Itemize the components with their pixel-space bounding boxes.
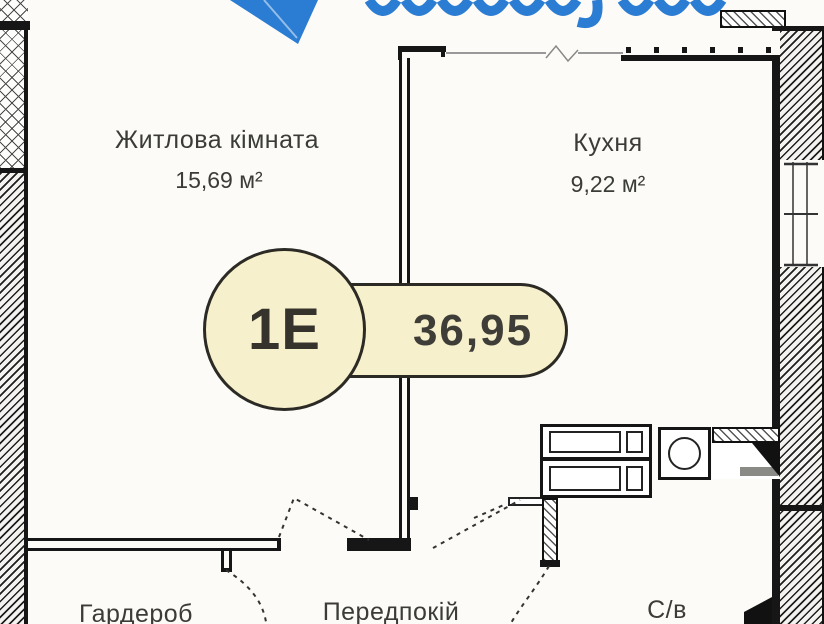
- right-wall-upper-hatch: [780, 31, 824, 160]
- right-wall-inner-line-upper: [772, 55, 780, 435]
- bathtub-upper-end: [626, 431, 643, 453]
- entrance-door-sill: [740, 467, 778, 476]
- kitchen-door-swing: [433, 500, 520, 548]
- kitchen-top-wall: [398, 46, 778, 61]
- logo: [230, 0, 722, 44]
- left-wall-upper-hatch: [0, 30, 28, 168]
- kitchen-label: Кухня: [573, 129, 642, 158]
- living-room-door-swing: [279, 498, 369, 540]
- bottom-right-wall-fragment: [744, 597, 772, 624]
- unit-total-area: 36,95: [413, 306, 533, 356]
- unit-type-label: 1Е: [248, 296, 321, 363]
- bottom-wall-line-bottom: [26, 548, 280, 551]
- bathtub-upper-inner: [549, 431, 621, 453]
- divider-wall-foot: [347, 538, 411, 551]
- living-room-label: Житлова кімната: [115, 126, 319, 155]
- bathtub-lower-end: [626, 466, 643, 491]
- left-wall-top-bar: [0, 21, 30, 30]
- bottom-wall-end-cap: [277, 538, 281, 551]
- logo-text-partial: [369, 0, 722, 23]
- bathroom-wall-ledge: [508, 497, 546, 506]
- window-break-symbol: [546, 46, 578, 61]
- washing-machine-drum-icon: [668, 437, 701, 470]
- garderob-door-jamb-cap: [221, 568, 232, 572]
- left-wall-lower-hatch: [0, 173, 28, 624]
- logo-paper-plane-icon: [230, 0, 318, 44]
- right-wall-inner-line-lower: [772, 479, 780, 624]
- right-wall-divider-bar: [780, 505, 824, 511]
- left-wall-top-hatch: [0, 0, 28, 22]
- garderob-door-jamb: [221, 548, 232, 570]
- bathroom-wall-stub-cap: [540, 560, 560, 567]
- bathroom-label: С/в: [647, 596, 687, 624]
- bathtub-lower-inner: [549, 466, 621, 491]
- right-wall-window-symbol: [784, 162, 818, 266]
- divider-wall-step: [407, 497, 418, 510]
- right-wall-lower-hatch: [780, 267, 824, 624]
- bottom-wall-line-top: [26, 538, 280, 541]
- unit-type-badge[interactable]: 1Е: [203, 248, 366, 411]
- kitchen-area: 9,22 м²: [571, 171, 646, 198]
- wardrobe-door-swing: [226, 570, 266, 622]
- bathroom-wall-stub: [542, 498, 558, 562]
- hallway-label: Передпокій: [323, 598, 460, 624]
- entrance-door-lintel: [712, 427, 780, 443]
- bathroom-door-swing: [511, 566, 549, 623]
- unit-area-badge[interactable]: 36,95: [344, 283, 568, 378]
- floor-plan: Житлова кімната 15,69 м² Кухня 9,22 м² Г…: [0, 0, 824, 624]
- living-room-area: 15,69 м²: [175, 167, 262, 194]
- kitchen-door-swing-2: [474, 504, 506, 518]
- wardrobe-label: Гардероб: [79, 600, 193, 624]
